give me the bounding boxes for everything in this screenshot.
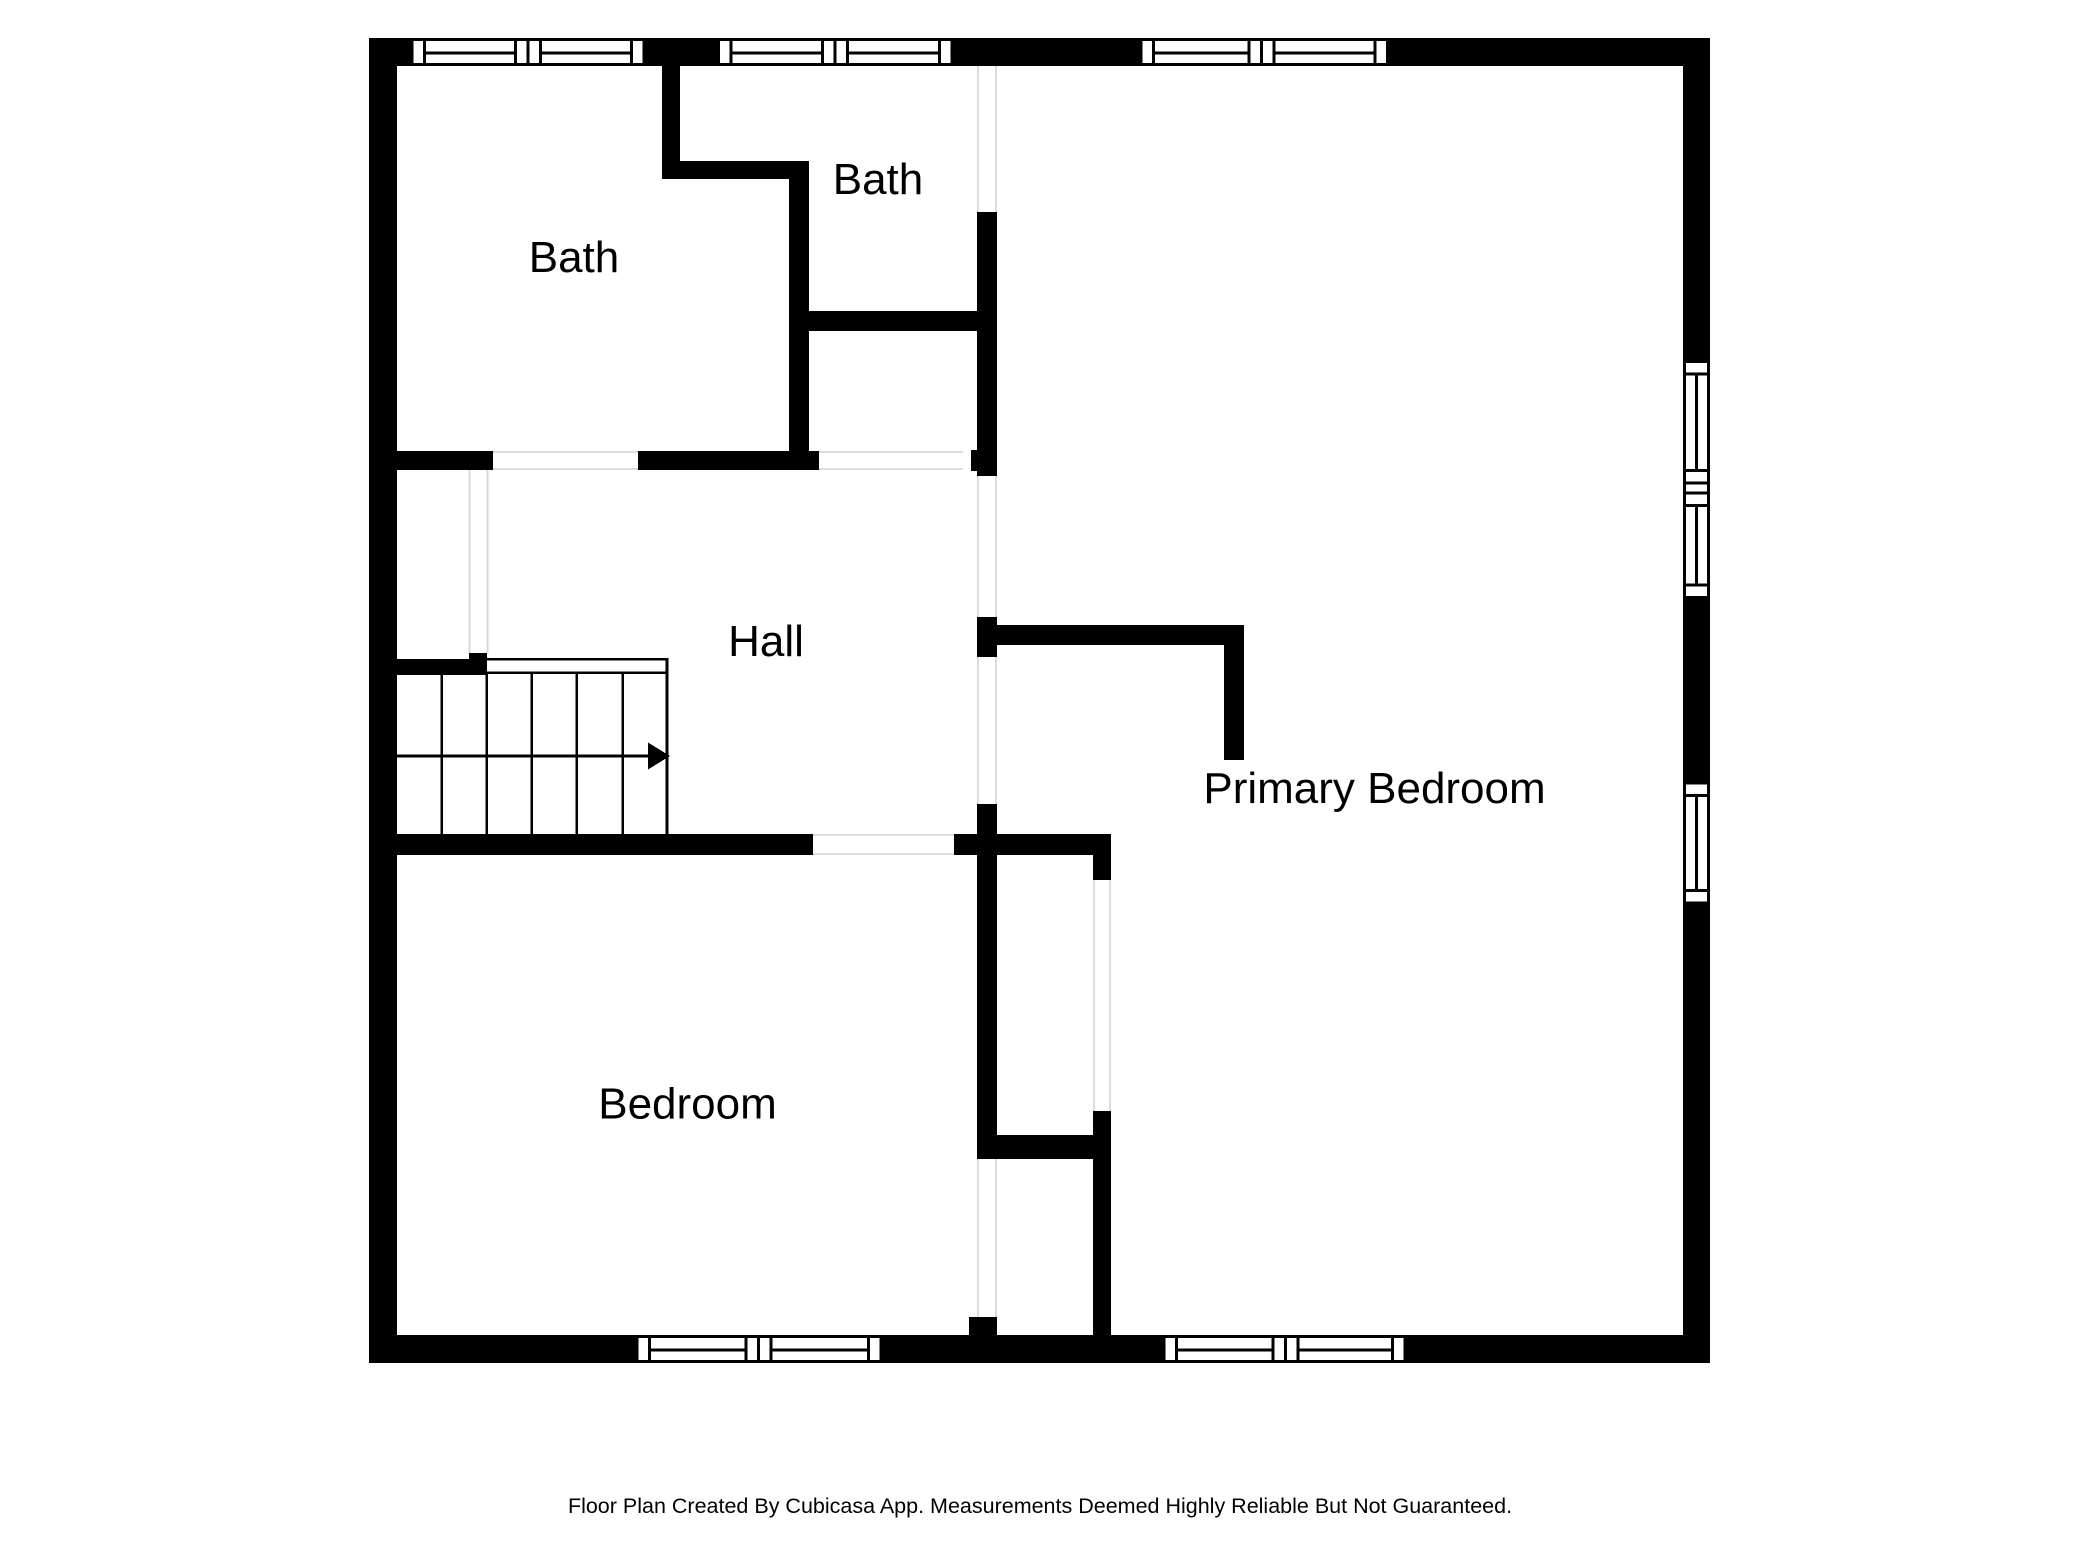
svg-text:Primary Bedroom: Primary Bedroom — [1203, 764, 1545, 813]
svg-text:Bath: Bath — [529, 233, 620, 282]
svg-text:Floor Plan Created By Cubicasa: Floor Plan Created By Cubicasa App. Meas… — [568, 1494, 1512, 1518]
svg-text:Hall: Hall — [728, 617, 804, 666]
svg-text:Bedroom: Bedroom — [598, 1080, 777, 1129]
svg-text:Bath: Bath — [833, 155, 924, 204]
